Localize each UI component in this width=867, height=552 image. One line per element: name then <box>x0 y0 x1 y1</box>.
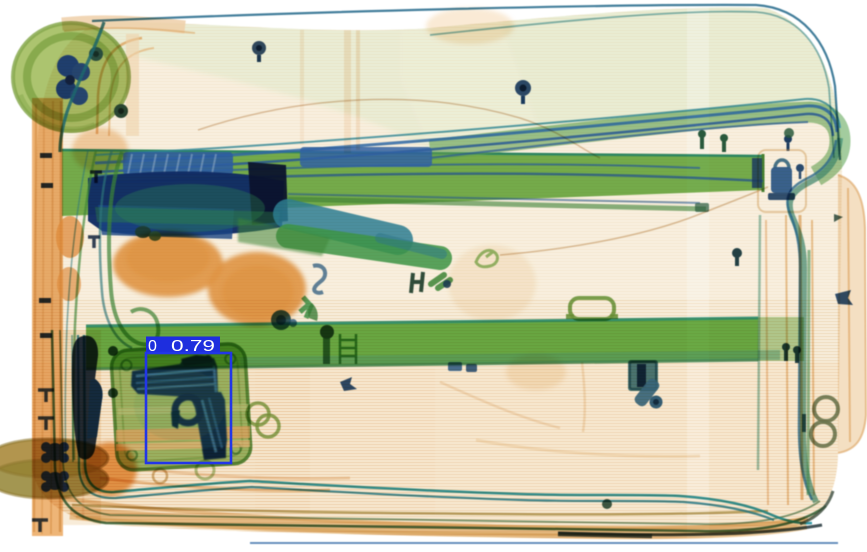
svg-text:0: 0 <box>148 338 157 355</box>
svg-text:0.79: 0.79 <box>171 338 215 355</box>
